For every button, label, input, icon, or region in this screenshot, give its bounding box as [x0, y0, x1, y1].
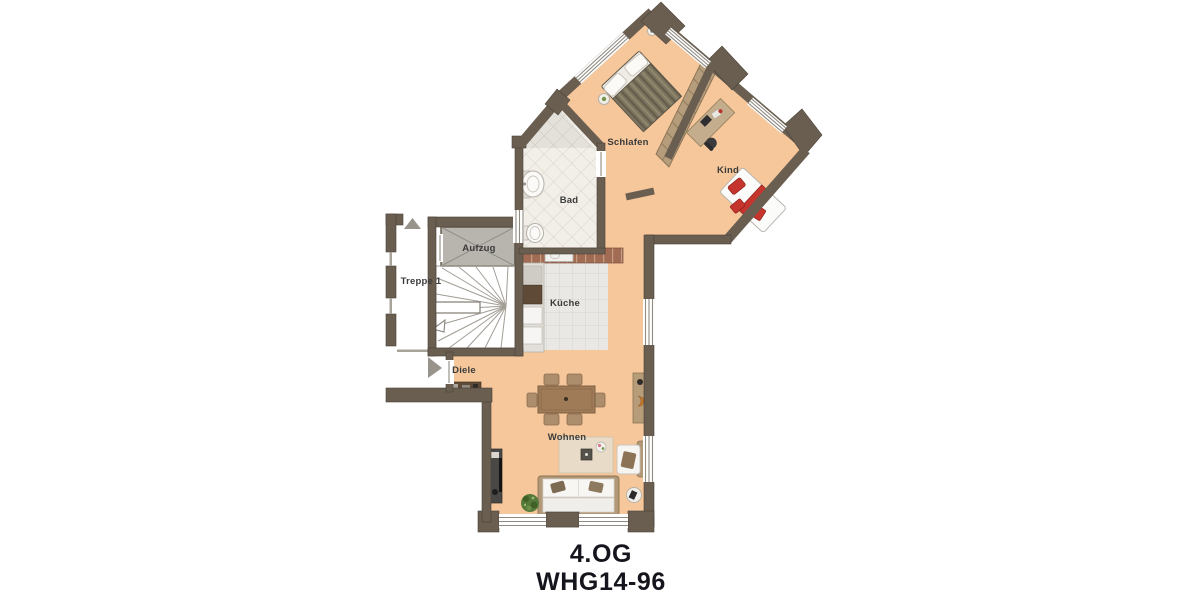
caption-unit: WHG14-96 [536, 568, 666, 596]
plan-caption: 4.OG WHG14-96 [536, 540, 666, 596]
room-label-bad: Bad [560, 195, 579, 206]
entrance-arrow-icon [428, 357, 442, 378]
room-label-kueche: Küche [550, 298, 580, 309]
room-label-treppe: Treppe 1 [401, 276, 442, 287]
bathroom-sink [521, 171, 544, 198]
floor-plan-canvas: Schlafen Kind Bad Küche Diele Wohnen Auf… [0, 0, 1200, 600]
room-label-aufzug: Aufzug [462, 243, 495, 254]
stool [627, 488, 642, 503]
plant [521, 494, 539, 512]
up-arrow-icon [404, 218, 421, 229]
caption-floor: 4.OG [570, 540, 632, 568]
room-label-wohnen: Wohnen [548, 432, 587, 443]
floor-plan-page: Schlafen Kind Bad Küche Diele Wohnen Auf… [0, 0, 1200, 600]
room-label-schlafen: Schlafen [607, 137, 648, 148]
stair-handrail [434, 302, 480, 313]
sofa [538, 476, 619, 516]
room-label-diele: Diele [452, 365, 476, 376]
toilet [521, 224, 544, 243]
room-label-kind: Kind [717, 165, 739, 176]
